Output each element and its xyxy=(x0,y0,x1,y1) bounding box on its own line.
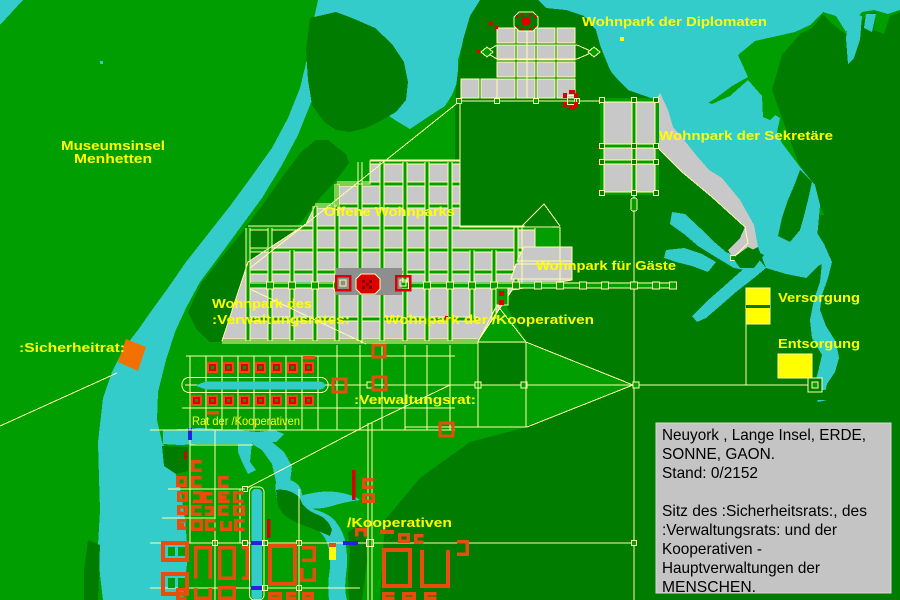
svg-text:Offene Wohnparks: Offene Wohnparks xyxy=(324,204,455,219)
svg-text:MENSCHEN.: MENSCHEN. xyxy=(662,579,756,596)
svg-text:Wohnpark des: Wohnpark des xyxy=(212,296,312,311)
svg-text::Verwaltungsrates:: :Verwaltungsrates: xyxy=(212,312,350,327)
svg-text:Neuyork , Lange Insel, ERDE,: Neuyork , Lange Insel, ERDE, xyxy=(662,427,866,444)
svg-text:Hauptverwaltungen der: Hauptverwaltungen der xyxy=(662,560,821,577)
svg-text:Entsorgung: Entsorgung xyxy=(778,336,860,351)
svg-text:Wohnpark der Diplomaten: Wohnpark der Diplomaten xyxy=(582,14,767,29)
svg-text::Verwaltungsrat:: :Verwaltungsrat: xyxy=(354,392,476,407)
svg-text:Wohnpark für Gäste: Wohnpark für Gäste xyxy=(536,258,676,273)
svg-text:/Kooperativen: /Kooperativen xyxy=(347,515,452,530)
svg-text:Wohnpark der /Kooperativen: Wohnpark der /Kooperativen xyxy=(385,312,594,327)
svg-text:Rat der /Kooperativen: Rat der /Kooperativen xyxy=(192,414,300,428)
svg-text:Sitz des :Sicherheitsrats:, de: Sitz des :Sicherheitsrats:, des xyxy=(662,503,867,520)
svg-text:Wohnpark der Sekretäre: Wohnpark der Sekretäre xyxy=(659,128,833,143)
svg-text::Verwaltungsrats: und der: :Verwaltungsrats: und der xyxy=(662,522,838,539)
svg-text:Versorgung: Versorgung xyxy=(778,290,860,305)
svg-text::Sicherheitrat:: :Sicherheitrat: xyxy=(19,340,125,355)
svg-text:Menhetten: Menhetten xyxy=(74,151,152,166)
svg-text:SONNE, GAON.: SONNE, GAON. xyxy=(662,446,775,463)
svg-text:Stand: 0/2152: Stand: 0/2152 xyxy=(662,465,758,482)
svg-text:Kooperativen -: Kooperativen - xyxy=(662,541,762,558)
